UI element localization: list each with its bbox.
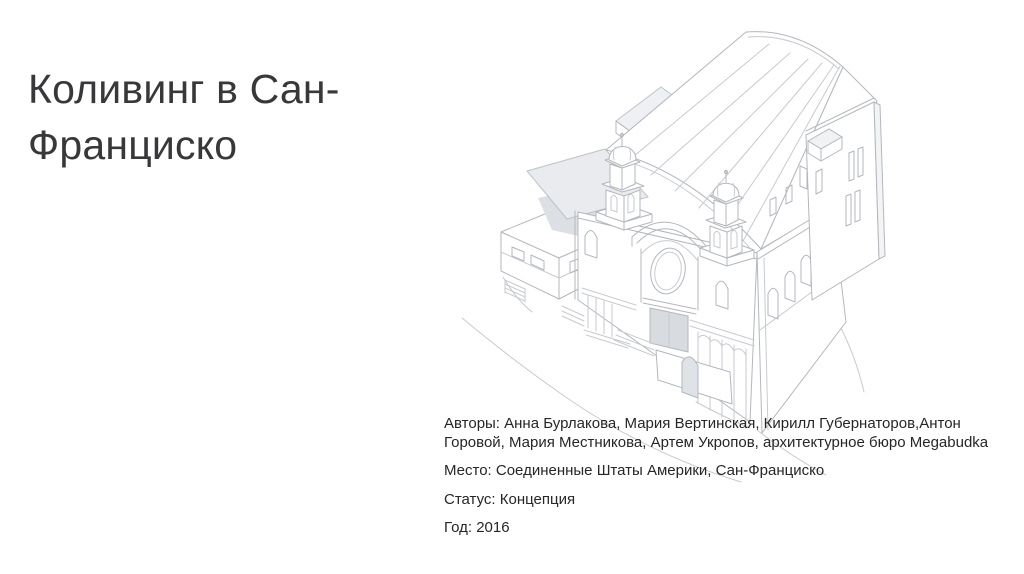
- info-authors: Авторы: Анна Бурлакова, Мария Вертинская…: [444, 415, 1014, 452]
- info-year: Год: 2016: [444, 519, 1014, 538]
- project-info-block: Авторы: Анна Бурлакова, Мария Вертинская…: [444, 415, 1014, 548]
- info-status: Статус: Концепция: [444, 491, 1014, 510]
- presentation-slide: Коливинг в Сан-Франциско Авторы: Анна Бу…: [0, 0, 1024, 574]
- info-place: Место: Соединенные Штаты Америки, Сан-Фр…: [444, 462, 1014, 481]
- slide-title: Коливинг в Сан-Франциско: [28, 62, 388, 174]
